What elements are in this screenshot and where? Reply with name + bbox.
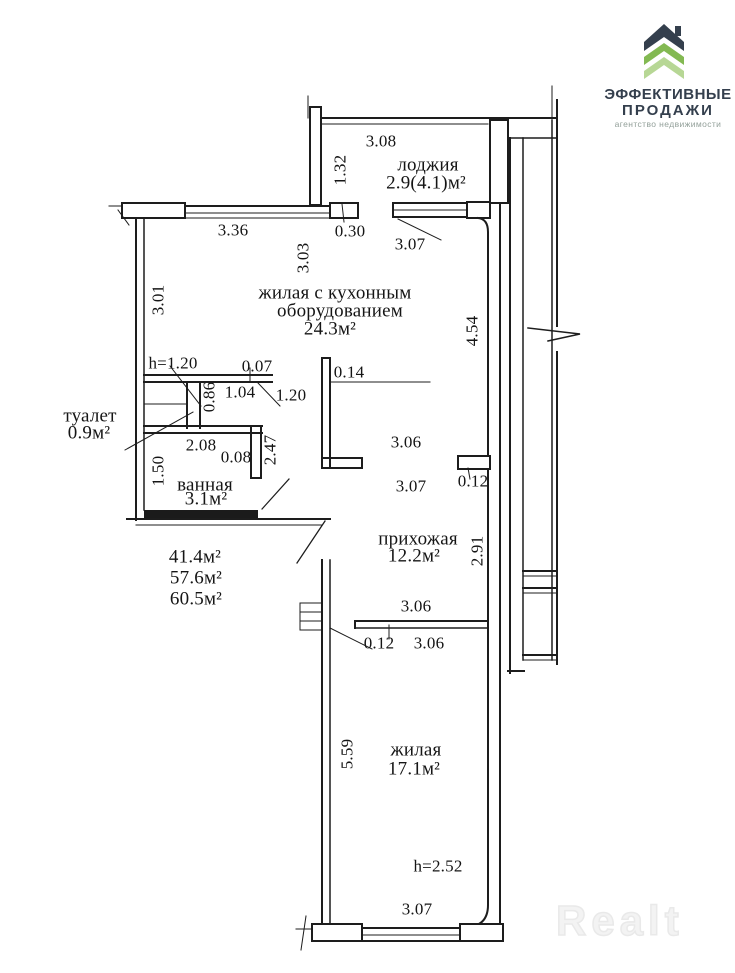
dim-hall-307: 3.07	[396, 478, 427, 495]
dim-008: 0.08	[221, 449, 252, 466]
dim-window-top: 3.36	[218, 222, 249, 239]
dim-014: 0.14	[334, 364, 365, 381]
floorplan-page: 3.08 1.32 лоджия 2.9(4.1)м² 3.36 0.30 3.…	[0, 0, 735, 973]
room-label-living: жилая	[391, 741, 442, 760]
room-area-living: 17.1м²	[388, 760, 440, 779]
agency-logo: ЭФФЕКТИВНЫЕ ПРОДАЖИ агентство недвижимос…	[586, 18, 735, 128]
agency-name-line2: ПРОДАЖИ	[622, 102, 714, 119]
dim-div-012: 0.12	[364, 635, 395, 652]
dim-086: 0.86	[201, 382, 218, 413]
dim-div-306a: 3.06	[401, 598, 432, 615]
room-area-hallway: 12.2м²	[388, 547, 440, 566]
room-area-toilet: 0.9м²	[68, 424, 110, 443]
dim-247: 2.47	[262, 435, 279, 466]
realt-watermark: Realt	[556, 897, 684, 945]
dim-wall-303: 3.03	[295, 243, 312, 274]
dim-living-307: 3.07	[402, 901, 433, 918]
agency-house-icon	[586, 18, 735, 82]
dim-hall-291: 2.91	[469, 536, 486, 567]
dim-wall-454: 4.54	[464, 316, 481, 347]
walls	[109, 86, 580, 950]
dim-loggia-width: 3.08	[366, 133, 397, 150]
dim-loggia-bottom: 3.07	[395, 236, 426, 253]
room-area-loggia: 2.9(4.1)м²	[386, 174, 466, 193]
total-area-3: 60.5м²	[170, 590, 222, 609]
total-area-2: 57.6м²	[170, 569, 222, 588]
dim-loggia-depth: 1.32	[332, 155, 349, 186]
total-area-1: 41.4м²	[169, 548, 221, 567]
dim-balcony-door: 0.30	[335, 223, 366, 240]
agency-name-line1: ЭФФЕКТИВНЫЕ	[604, 86, 731, 103]
dim-div-306b: 3.06	[414, 635, 445, 652]
dim-hall-012: 0.12	[458, 473, 489, 490]
dim-wall-301: 3.01	[150, 285, 167, 316]
dim-living-559: 5.59	[339, 739, 356, 770]
room-area-bathroom: 3.1м²	[185, 490, 227, 509]
dim-120: 1.20	[276, 387, 307, 404]
dim-007: 0.07	[242, 358, 273, 375]
dim-hall-306: 3.06	[391, 434, 422, 451]
dim-208: 2.08	[186, 437, 217, 454]
agency-tagline: агентство недвижимости	[615, 119, 722, 129]
height-toilet-zone: h=1.20	[148, 355, 197, 372]
height-living: h=2.52	[413, 858, 462, 875]
dim-104: 1.04	[225, 384, 256, 401]
room-area-living-kitchen: 24.3м²	[304, 320, 356, 339]
dim-150: 1.50	[150, 456, 167, 487]
